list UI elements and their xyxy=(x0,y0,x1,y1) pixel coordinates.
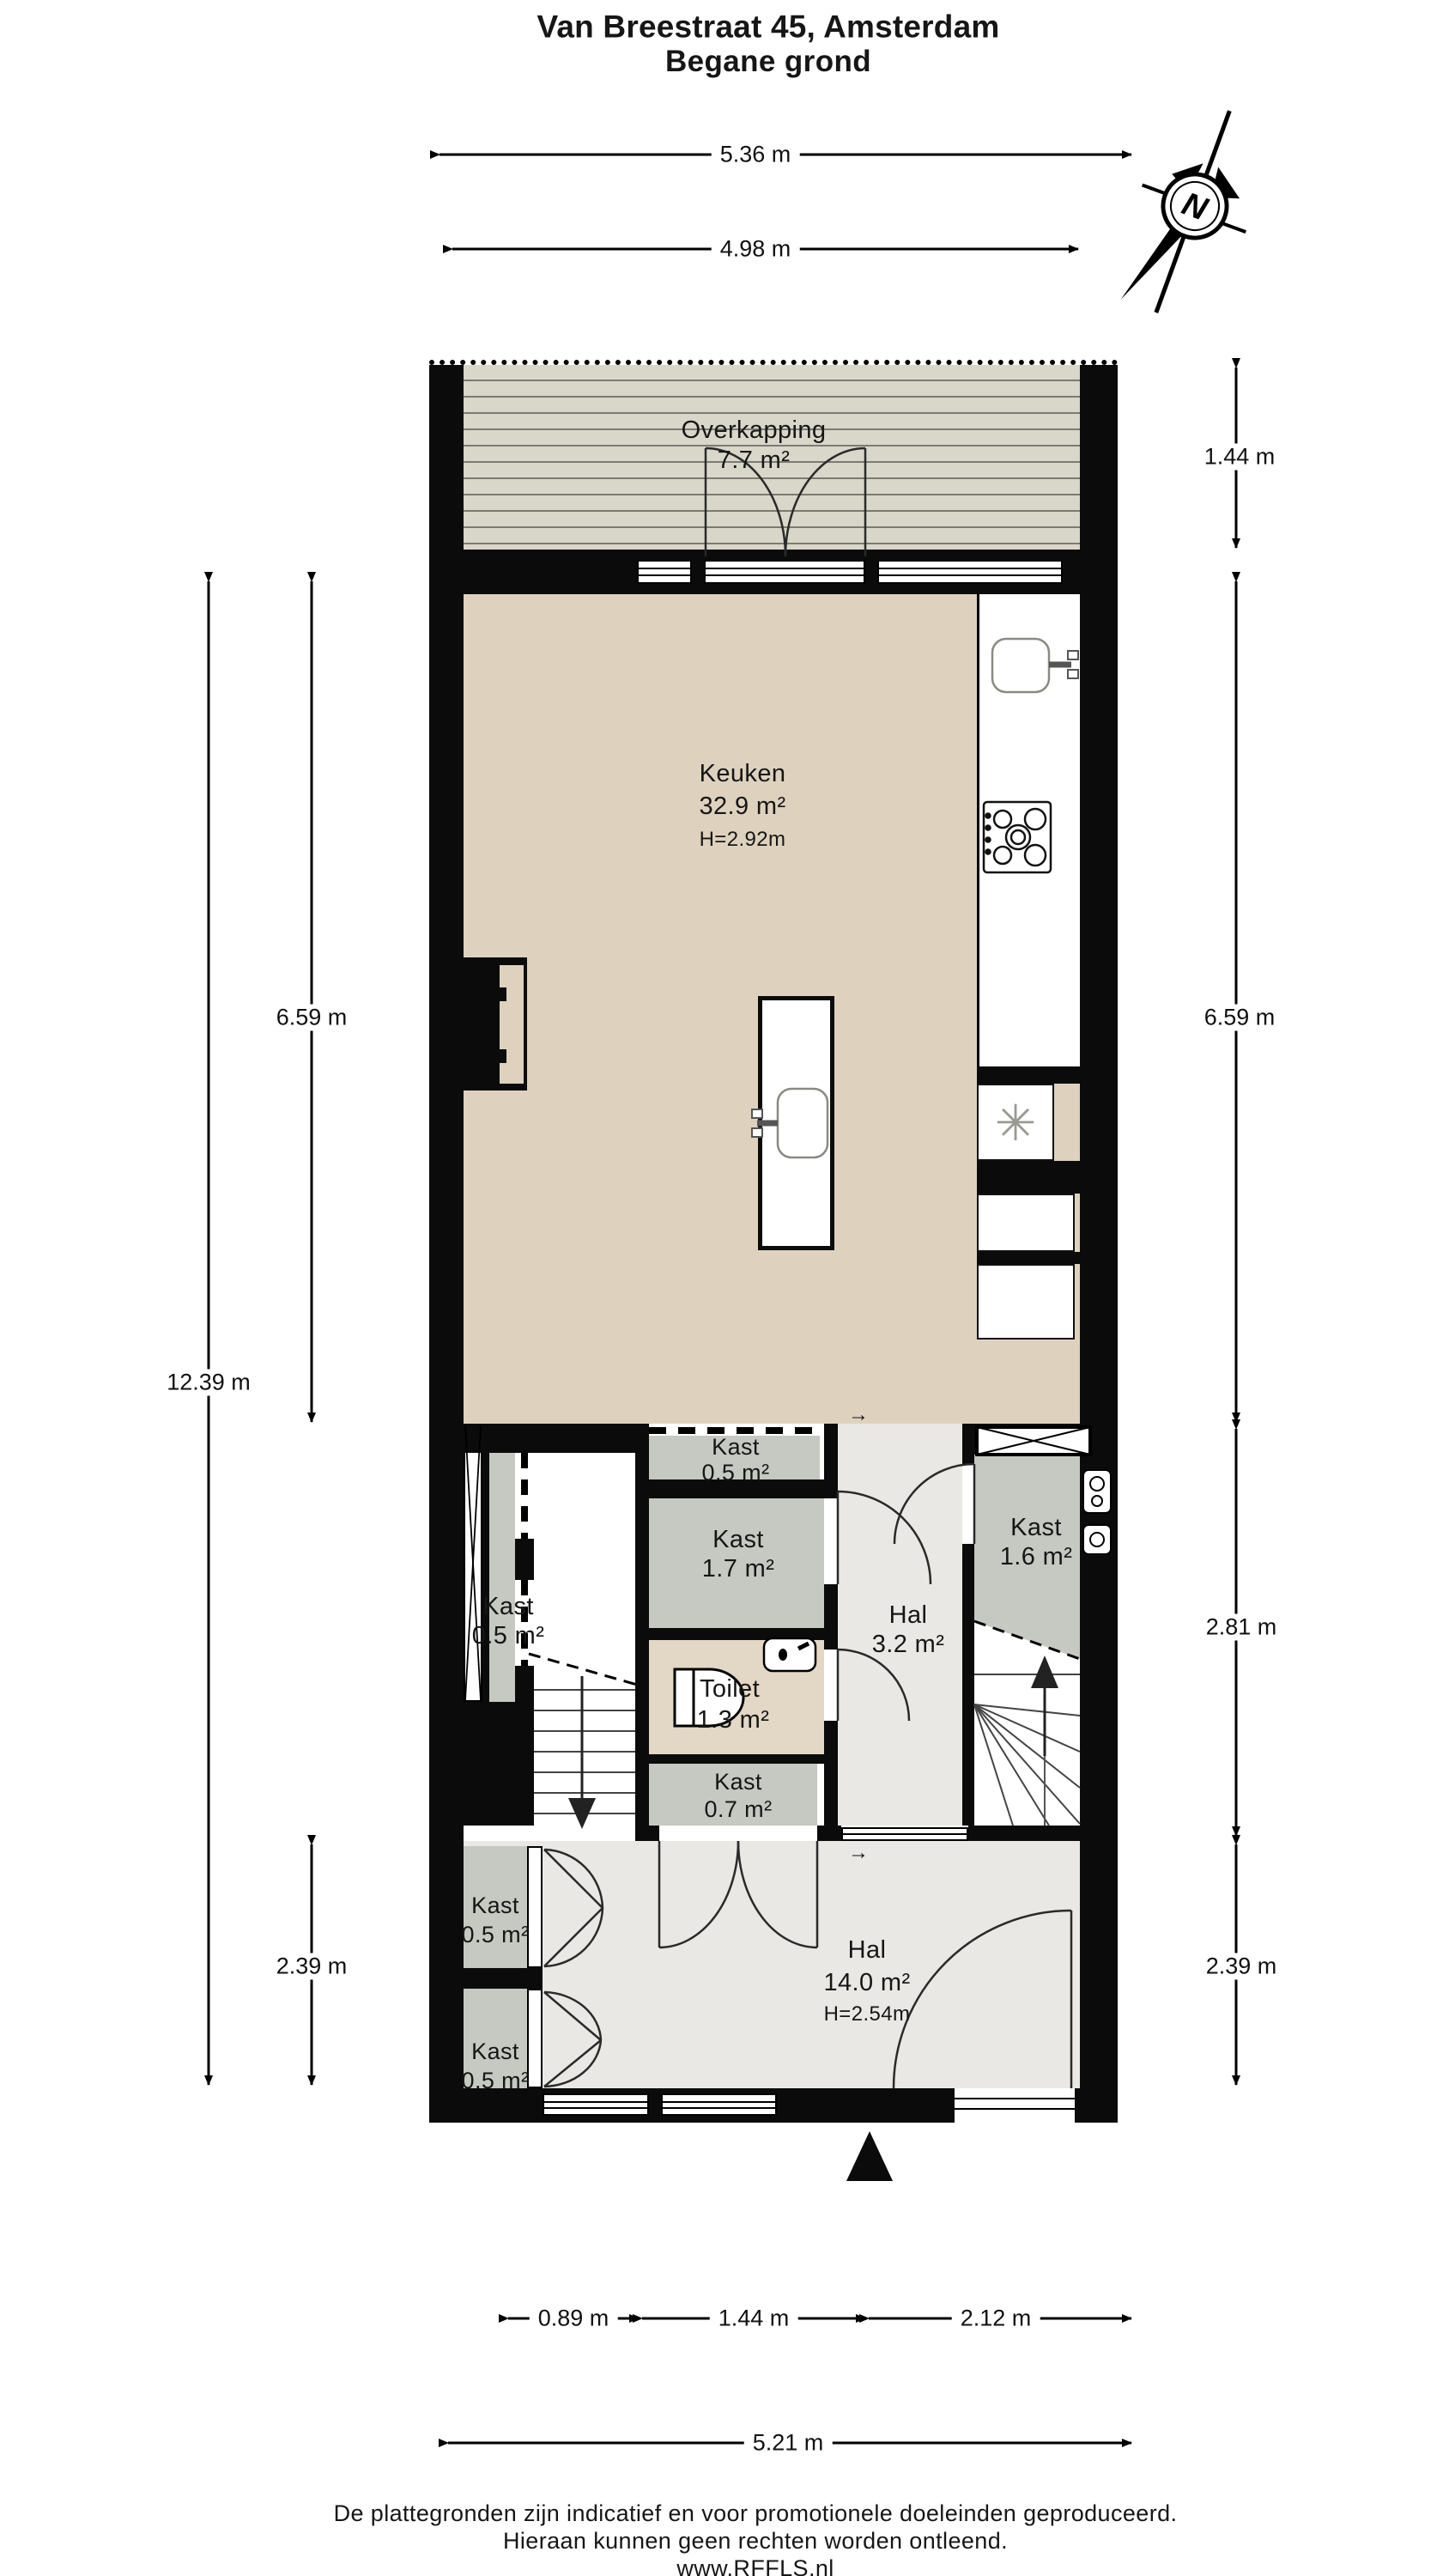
floorplan-page: Van Breestraat 45, Amsterdam Begane gron… xyxy=(0,0,1449,2576)
room-area-hal-main: 14.0 m² xyxy=(823,1970,910,1997)
room-label-toilet: Toilet xyxy=(700,1676,760,1704)
dim-top-outer: 5.36 m xyxy=(712,142,800,168)
compass-north-icon: N xyxy=(1103,92,1283,332)
stairs-down-area xyxy=(534,1424,635,1826)
room-label-keuken: Keuken xyxy=(700,761,786,788)
overkapping-dotted-edge xyxy=(429,360,1118,365)
front-window-right xyxy=(661,2093,777,2116)
room-label-hal-mid: Hal xyxy=(889,1602,928,1630)
kitchen-doors-glazing xyxy=(704,560,865,584)
footer-website: www.RFFLS.nl xyxy=(676,2556,834,2576)
footer-disclaimer-2: Hieraan kunnen geen rechten worden ontle… xyxy=(503,2529,1008,2555)
room-area-kast-b2: 0.5 m² xyxy=(462,2069,530,2094)
page-title: Van Breestraat 45, Amsterdam xyxy=(537,10,1000,46)
kitchen-island xyxy=(758,996,834,1250)
room-area-keuken: 32.9 m² xyxy=(699,793,785,821)
dim-bottom-seg1: 0.89 m xyxy=(530,2306,618,2332)
room-label-kast-top: Kast xyxy=(712,1435,760,1461)
appliance-box-2 xyxy=(977,1264,1075,1340)
room-area-kast-17: 1.7 m² xyxy=(702,1556,775,1583)
dim-right-overkapping: 1.44 m xyxy=(1196,444,1284,471)
dim-bottom-seg2: 1.44 m xyxy=(710,2306,798,2332)
room-label-kast-b2: Kast xyxy=(471,2039,519,2065)
hall-inner-window xyxy=(841,1827,968,1841)
dim-bottom-total: 5.21 m xyxy=(744,2430,833,2457)
passage-arrow-top: → xyxy=(848,1403,869,1427)
entrance-arrow-icon xyxy=(846,2131,893,2181)
room-area-kast-top: 0.5 m² xyxy=(702,1461,770,1486)
kast-left-floor xyxy=(489,1424,515,1702)
room-label-kast-b1: Kast xyxy=(471,1893,519,1919)
room-label-hal-main: Hal xyxy=(848,1937,887,1965)
appliance-box-1 xyxy=(977,1194,1075,1252)
kitchen-window-right xyxy=(877,560,1063,584)
dim-left-hall: 2.39 m xyxy=(268,1953,356,1980)
room-height-hal-main: H=2.54m xyxy=(824,2003,911,2026)
kitchen-counter xyxy=(977,592,1082,1066)
dim-right-middle: 2.81 m xyxy=(1197,1614,1286,1641)
room-area-toilet: 1.3 m² xyxy=(697,1707,770,1735)
passage-arrow-bottom: → xyxy=(848,1841,869,1865)
room-label-kast-left: Kast xyxy=(482,1594,534,1621)
room-area-kast-07: 0.7 m² xyxy=(705,1797,773,1823)
compass-label: N xyxy=(1178,186,1214,228)
dim-bottom-seg3: 2.12 m xyxy=(952,2306,1040,2332)
entrance-door-gap xyxy=(955,2088,1075,2123)
dim-right-kitchen: 6.59 m xyxy=(1196,1005,1284,1031)
footer-disclaimer-1: De plattegronden zijn indicatief en voor… xyxy=(334,2501,1178,2527)
page-subtitle: Begane grond xyxy=(665,46,871,79)
room-area-overkapping: 7.7 m² xyxy=(718,447,791,475)
room-label-kast-17: Kast xyxy=(712,1527,764,1554)
snowflake-icon: ✳ xyxy=(995,1094,1037,1152)
stairs-up-area xyxy=(974,1597,1080,1826)
dim-left-total: 12.39 m xyxy=(158,1370,259,1396)
room-height-keuken: H=2.92m xyxy=(700,829,786,851)
room-label-kast-16: Kast xyxy=(1010,1515,1062,1542)
room-label-overkapping: Overkapping xyxy=(682,417,827,445)
dim-right-hall: 2.39 m xyxy=(1197,1953,1286,1980)
outer-wall-right xyxy=(1080,365,1118,2123)
room-area-hal-mid: 3.2 m² xyxy=(872,1631,945,1659)
room-area-kast-b1: 0.5 m² xyxy=(462,1923,530,1948)
outer-wall-left xyxy=(429,365,464,2123)
dim-top-inner: 4.98 m xyxy=(712,236,800,263)
shaft-left xyxy=(464,1424,482,1702)
room-label-kast-07: Kast xyxy=(714,1770,762,1795)
room-area-kast-16: 1.6 m² xyxy=(1000,1544,1073,1571)
dim-left-kitchen: 6.59 m xyxy=(268,1005,356,1031)
room-area-kast-left: 0.5 m² xyxy=(472,1623,545,1650)
hall-main-floor xyxy=(464,1841,1080,2088)
kitchen-window-left xyxy=(637,560,692,584)
front-window-left xyxy=(543,2093,649,2116)
